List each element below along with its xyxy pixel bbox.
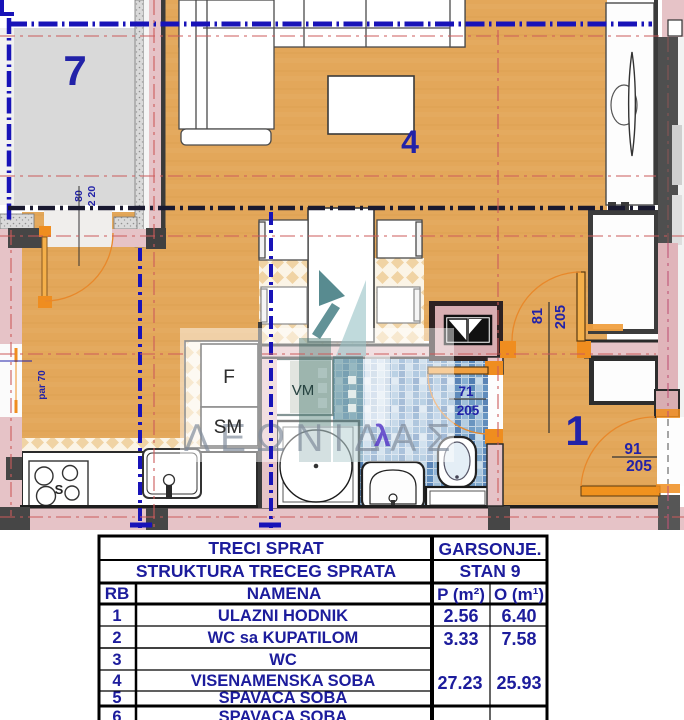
svg-text:81: 81 [530,308,546,324]
svg-text:VISENAMENSKA SOBA: VISENAMENSKA SOBA [191,672,376,690]
svg-text:3.33: 3.33 [443,629,478,649]
svg-text:NAMENA: NAMENA [247,584,322,603]
svg-text:205: 205 [457,403,480,418]
svg-text:3: 3 [112,651,121,669]
svg-text:SM: SM [214,417,243,438]
svg-text:27.23: 27.23 [437,673,482,693]
svg-text:91: 91 [624,441,642,458]
svg-text:P (m²): P (m²) [437,585,485,604]
svg-text:1: 1 [112,607,121,625]
svg-text:STRUKTURA TRECEG SPRATA: STRUKTURA TRECEG SPRATA [136,561,397,581]
svg-text:SPAVACA SOBA: SPAVACA SOBA [219,708,348,720]
svg-text:λ: λ [374,420,391,453]
svg-text:SPAVACA SOBA: SPAVACA SOBA [219,689,348,707]
svg-text:RB: RB [105,584,130,603]
svg-text:5: 5 [112,689,121,707]
svg-text:ULAZNI HODNIK: ULAZNI HODNIK [218,607,348,625]
svg-text:4: 4 [112,672,122,690]
svg-text:STAN 9: STAN 9 [460,561,521,581]
svg-text:6: 6 [112,708,121,720]
svg-text:205: 205 [626,458,652,475]
svg-text:6.40: 6.40 [501,606,536,626]
svg-text:S: S [55,482,64,497]
svg-text:71: 71 [458,384,474,399]
svg-text:2.56: 2.56 [443,606,478,626]
svg-text:2: 2 [112,629,121,647]
svg-text:4: 4 [401,124,419,160]
svg-text:205: 205 [553,305,569,329]
svg-text:par 70: par 70 [37,370,48,400]
svg-text:7.58: 7.58 [501,629,536,649]
svg-text:F: F [223,367,235,388]
svg-text:GARSONJE.: GARSONJE. [438,539,541,559]
svg-text:O (m¹): O (m¹) [494,585,544,604]
svg-text:7: 7 [63,47,86,94]
svg-text:VM: VM [292,382,315,399]
svg-text:25.93: 25.93 [496,673,541,693]
svg-text:WC: WC [269,651,297,669]
svg-text:WC sa KUPATILOM: WC sa KUPATILOM [208,629,359,647]
svg-text:1: 1 [565,407,588,454]
svg-text:2 20: 2 20 [86,186,98,207]
svg-text:TRECI SPRAT: TRECI SPRAT [208,538,324,558]
